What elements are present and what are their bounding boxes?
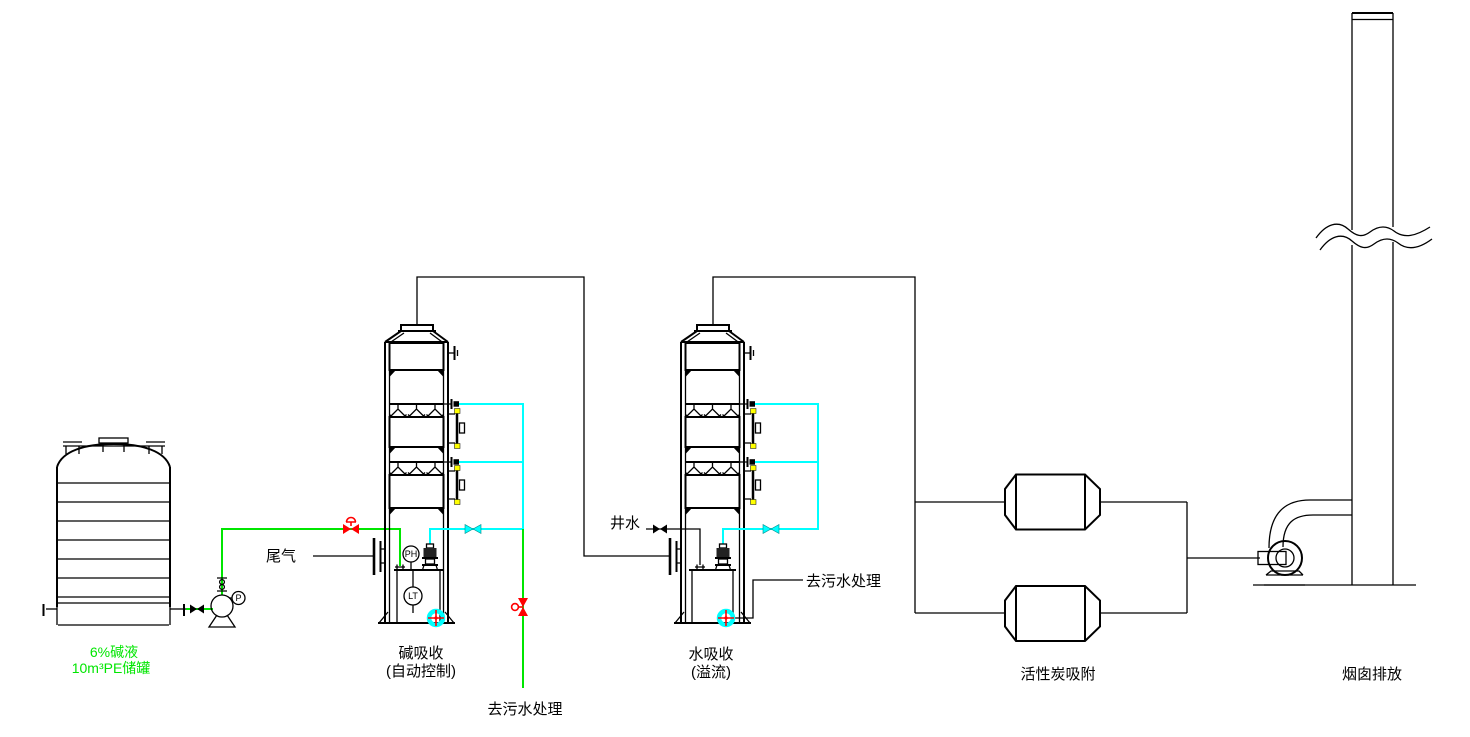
pressure-gauge-label: P <box>235 593 241 603</box>
riser-check-valve <box>217 578 227 591</box>
stack-label: 烟囱排放 <box>1342 666 1402 683</box>
tower1-mode: (自动控制) <box>386 663 456 680</box>
tank-label-line1: 6%碱液 <box>90 644 138 660</box>
tower2-inlet-flange <box>670 538 681 575</box>
carbon-vessel-2 <box>1005 586 1100 641</box>
tank-label-line2: 10m³PE储罐 <box>72 660 151 676</box>
tail-gas-label: 尾气 <box>266 548 296 565</box>
well-water-valve <box>653 525 667 534</box>
ph-meter: PH <box>403 546 419 570</box>
tower1-inlet-flange <box>374 538 385 575</box>
tower2-name: 水吸收 <box>688 646 733 663</box>
tower2-circulation-pump <box>715 544 731 570</box>
level-transmitter: LT <box>404 570 422 613</box>
tower1-drain-label: 去污水处理 <box>487 701 562 718</box>
alkali-transfer-pump <box>209 595 235 627</box>
process-flow-diagram: 6%碱液 10m³PE储罐 P 尾气 <box>0 0 1470 737</box>
water-scrubber-tower <box>674 325 761 623</box>
tower2-drain-label: 去污水处理 <box>806 573 881 590</box>
tower1-drain-point <box>428 610 444 626</box>
alkali-scrubber-tower <box>378 325 465 623</box>
carbon-manifold <box>915 502 1260 613</box>
carbon-vessel-1 <box>1005 475 1100 530</box>
tower2-circulation-valve <box>763 525 779 534</box>
chimney <box>1316 13 1432 585</box>
tower2-mode: (溢流) <box>691 664 731 681</box>
feed-control-valve <box>343 518 359 535</box>
tower2-overflow-point <box>718 610 734 626</box>
alkali-feed-line <box>186 529 400 609</box>
carbon-unit-label: 活性炭吸附 <box>1020 666 1095 683</box>
level-transmitter-label: LT <box>408 591 418 601</box>
pressure-gauge: P <box>229 592 245 605</box>
well-water-label: 井水 <box>610 515 640 532</box>
diagram-canvas: 6%碱液 10m³PE储罐 P 尾气 <box>0 0 1470 737</box>
tower1-circulation-pump <box>422 544 438 570</box>
alkali-storage-tank <box>44 438 187 625</box>
well-water-line <box>646 529 700 565</box>
tank-outlet-valve <box>190 605 204 614</box>
tower1-drain-valve <box>512 598 528 616</box>
ph-meter-label: PH <box>405 549 418 559</box>
chimney-break-symbol <box>1316 224 1432 250</box>
exhaust-fan <box>1258 500 1352 585</box>
tower1-name: 碱吸收 <box>398 645 443 662</box>
tower1-circulation-valve <box>465 525 481 534</box>
